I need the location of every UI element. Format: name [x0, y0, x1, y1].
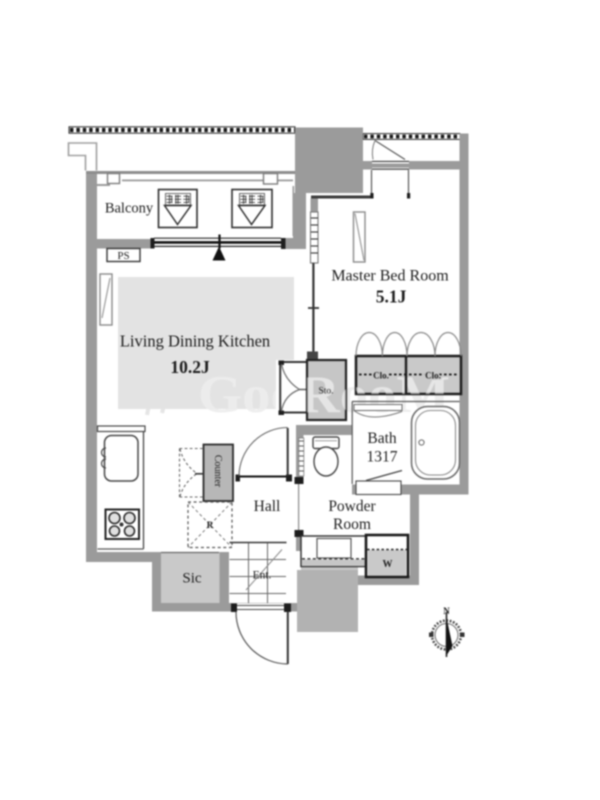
svg-text:Ent.: Ent.: [253, 570, 272, 582]
svg-text:Room: Room: [333, 516, 371, 533]
svg-text:PS: PS: [117, 250, 129, 262]
svg-text:Balcony: Balcony: [105, 201, 154, 217]
svg-text:1317: 1317: [367, 449, 398, 466]
svg-text:Clo.: Clo.: [425, 371, 441, 381]
svg-text:Bath: Bath: [367, 430, 397, 447]
svg-text:R: R: [207, 520, 214, 530]
svg-text:Master Bed Room: Master Bed Room: [331, 268, 449, 285]
svg-text:Sic: Sic: [182, 571, 202, 587]
svg-text:5.1J: 5.1J: [376, 287, 407, 307]
svg-text:W: W: [383, 559, 393, 570]
svg-text:Sto.: Sto.: [318, 387, 333, 397]
svg-text:10.2J: 10.2J: [170, 357, 210, 377]
svg-text:Living Dining Kitchen: Living Dining Kitchen: [120, 332, 270, 351]
svg-text:Powder: Powder: [328, 498, 376, 515]
svg-text:Clo.: Clo.: [373, 371, 389, 381]
svg-text:Hall: Hall: [254, 498, 281, 515]
svg-text:Counter: Counter: [212, 455, 223, 488]
